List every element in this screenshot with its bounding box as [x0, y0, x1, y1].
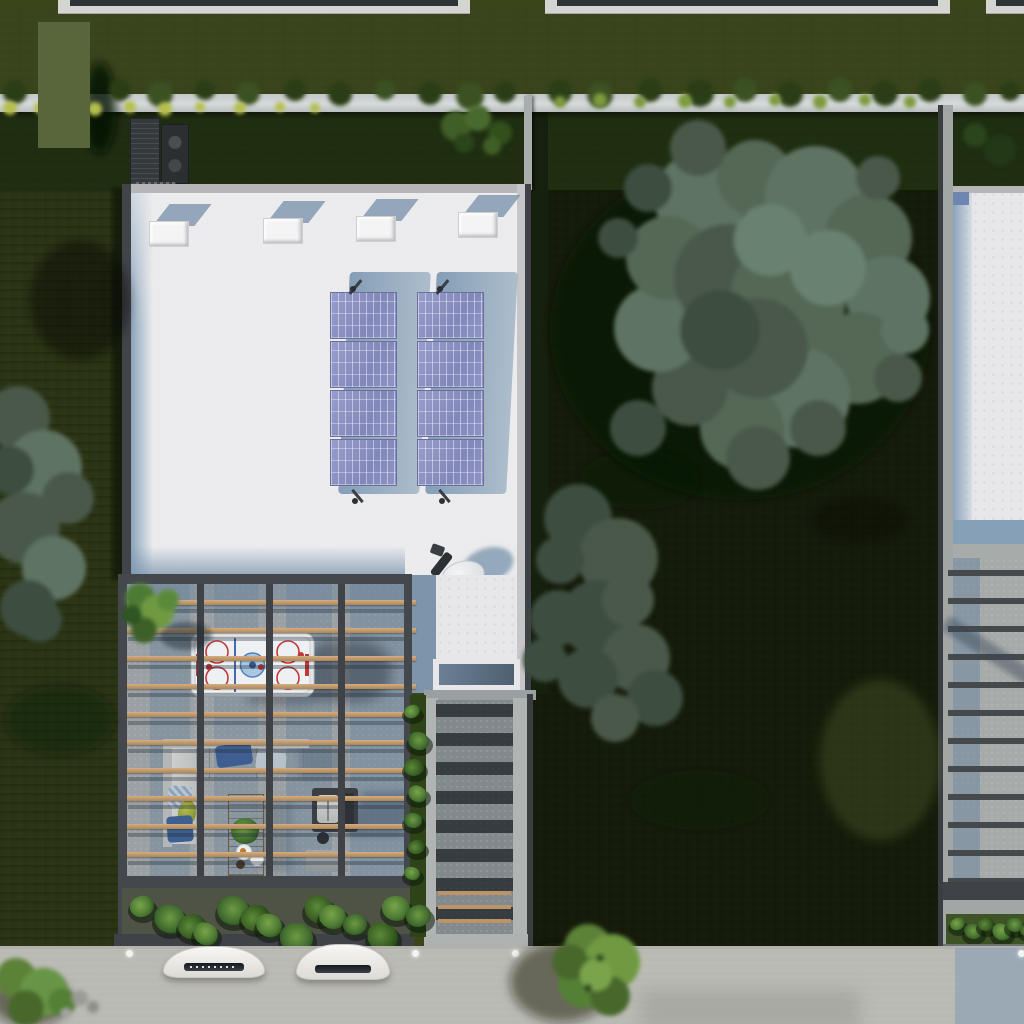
solar-mount — [352, 498, 358, 504]
privacy-marker — [38, 22, 90, 148]
solar-mount — [437, 286, 443, 292]
solar-panel — [417, 390, 484, 437]
solar-panel — [330, 390, 397, 437]
foliage-layer — [0, 0, 1024, 1024]
solar-panel — [330, 292, 397, 339]
solar-panel — [330, 439, 397, 486]
solar-panel — [417, 292, 484, 339]
solar-mount — [439, 498, 445, 504]
solar-panel — [417, 341, 484, 388]
aerial-render — [0, 0, 1024, 1024]
solar-panel — [417, 439, 484, 486]
hvac-unit — [356, 216, 396, 242]
solar-panel — [330, 341, 397, 388]
solar-mount — [350, 286, 356, 292]
hvac-unit — [458, 212, 498, 238]
hvac-unit — [263, 218, 303, 244]
hvac-unit — [149, 221, 189, 247]
